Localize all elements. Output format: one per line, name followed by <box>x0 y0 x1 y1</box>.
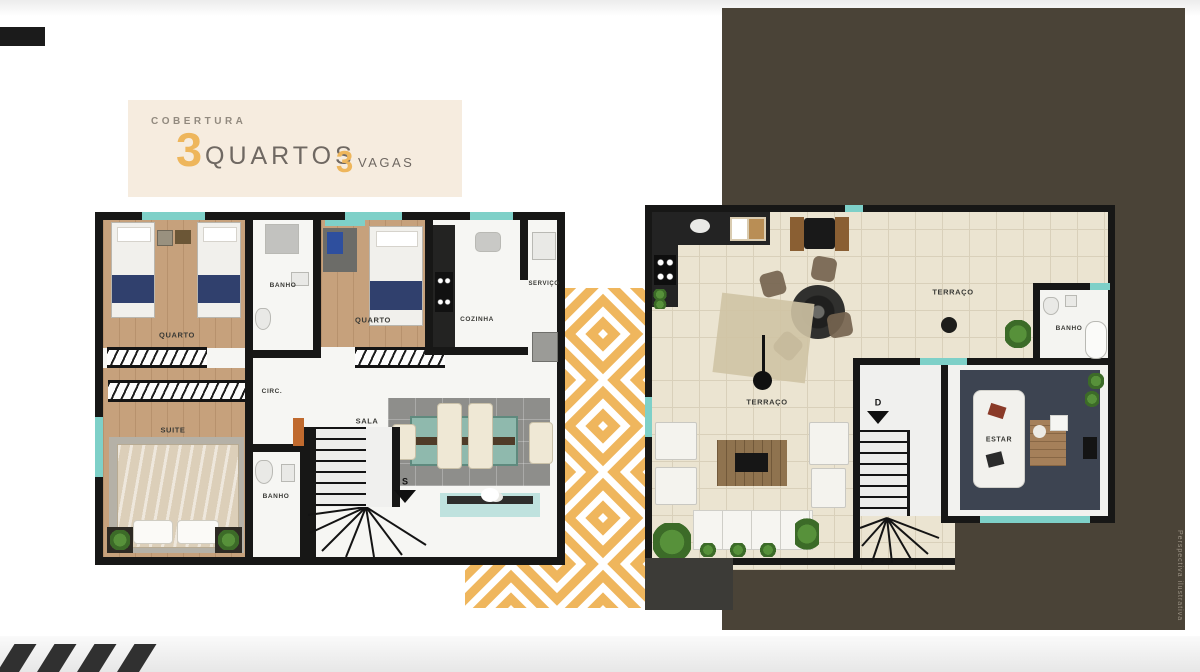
plant <box>653 289 667 300</box>
terrace-chair <box>810 255 838 283</box>
top-left-mark <box>0 27 45 46</box>
logo-slash <box>30 644 77 672</box>
lounge-chair <box>811 468 846 508</box>
wall <box>245 220 253 450</box>
board-detail-wood <box>749 219 764 239</box>
logo-slash <box>70 644 117 672</box>
plant <box>760 543 776 557</box>
blanket <box>112 275 154 303</box>
plant <box>795 517 819 551</box>
page-canvas: COBERTURA 3 QUARTOS 3 VAGAS QUARTO <box>0 0 1200 672</box>
lounge-chair <box>809 422 849 465</box>
planter-pot <box>941 317 957 333</box>
room-label-banho2: BANHO <box>263 494 290 501</box>
bench-plank <box>835 217 849 251</box>
toilet <box>255 308 271 330</box>
window-strip <box>920 358 967 365</box>
room-label-estar: ESTAR <box>986 437 1012 444</box>
wall <box>300 452 308 557</box>
laundry-tank <box>532 232 556 260</box>
blanket <box>198 275 240 303</box>
plan-base-shadow <box>645 558 733 610</box>
pillow <box>376 231 418 247</box>
window-strip <box>980 516 1090 523</box>
wall <box>941 358 948 523</box>
plant <box>653 523 691 561</box>
room-label-sala: SALA <box>356 417 379 425</box>
logo-slash <box>0 644 36 672</box>
washer <box>532 332 558 362</box>
stairs-fan <box>308 507 436 557</box>
terrace-chair <box>826 311 854 339</box>
plant <box>110 530 130 550</box>
stairs-straight <box>316 427 366 507</box>
cooktop <box>654 255 676 285</box>
window-strip <box>470 212 513 220</box>
wall <box>425 220 433 347</box>
stat-parking-label: VAGAS <box>358 155 414 170</box>
bench-seat <box>804 218 835 249</box>
blanket <box>370 281 422 310</box>
room-label-cozinha: COZINHA <box>460 317 494 324</box>
wall <box>520 220 528 280</box>
dining-chair <box>437 403 462 469</box>
room-label-quarto1: QUARTO <box>159 331 195 339</box>
kitchen-sink <box>475 232 501 252</box>
room-label-banho: BANHO <box>1056 326 1083 333</box>
window-strip <box>95 417 103 477</box>
pillow <box>203 227 237 242</box>
nightstand <box>157 230 173 246</box>
window-strip <box>1090 283 1110 290</box>
twin-bed <box>197 222 241 318</box>
door-leaf <box>293 418 304 446</box>
umbrella-base <box>753 371 772 390</box>
wall <box>1033 283 1040 365</box>
stat-bedrooms-label: QUARTOS <box>205 142 356 171</box>
logo-slashes <box>0 640 200 672</box>
wardrobe <box>107 347 207 368</box>
round-rug <box>1033 425 1046 438</box>
shower <box>265 224 299 254</box>
toilet <box>1043 297 1059 315</box>
room-label-terraco-center: TERRAÇO <box>746 398 787 406</box>
wall <box>645 205 1115 212</box>
dining-chair <box>529 422 553 464</box>
deck-tv <box>735 453 768 472</box>
twin-bed <box>111 222 155 318</box>
laptop <box>327 232 343 254</box>
pillow <box>133 520 173 544</box>
stairs-straight <box>860 430 908 516</box>
logo-slash <box>110 644 157 672</box>
room-label-circ: CIRC. <box>262 389 283 396</box>
wall <box>245 444 253 557</box>
plant <box>218 530 239 550</box>
stairs-fan <box>860 516 941 563</box>
stair-direction-s: S <box>402 478 408 487</box>
window-strip <box>345 212 402 220</box>
stat-bedrooms-value: 3 <box>176 122 202 177</box>
plant <box>1005 320 1031 348</box>
picture-frame <box>175 230 191 244</box>
stove <box>435 272 453 312</box>
bathtub <box>1085 321 1107 359</box>
stair-direction-d: D <box>875 399 882 408</box>
lower-floor-plan: QUARTO BANHO QUARTO COZINHA <box>95 212 565 565</box>
wall <box>855 358 1115 365</box>
dining-chair <box>468 403 493 469</box>
stair-arrow-icon <box>394 490 416 503</box>
wall <box>313 220 321 352</box>
plant <box>1085 391 1099 407</box>
plant <box>730 543 746 557</box>
wall <box>853 358 860 565</box>
room-label-servico: SERVIÇO <box>528 281 559 287</box>
room-label-quarto2: QUARTO <box>355 316 391 324</box>
plant <box>1088 373 1104 389</box>
pillow <box>117 227 151 242</box>
watermark: Perspectiva ilustrativa <box>1176 530 1183 630</box>
estar-tv <box>1083 437 1097 459</box>
stair-arrow-icon <box>867 411 889 424</box>
sink <box>1065 295 1077 307</box>
roof-terrace-plan: TERRAÇO TERRAÇO BANHO D <box>645 205 1115 575</box>
title-block: COBERTURA 3 QUARTOS 3 VAGAS <box>128 100 462 197</box>
headboard-strip <box>325 220 365 226</box>
single-bed <box>369 226 423 326</box>
flowers <box>481 488 499 502</box>
room-label-terraco-right: TERRAÇO <box>932 288 973 296</box>
wardrobe <box>108 380 245 402</box>
gourmet-sink <box>690 219 710 233</box>
stairs-landing <box>366 427 392 507</box>
lounge-chair <box>655 467 697 505</box>
room-label-banho1: BANHO <box>270 283 297 290</box>
stairs-rail <box>907 430 910 516</box>
pillow <box>177 520 219 544</box>
wall <box>425 347 528 355</box>
window-strip <box>845 205 863 212</box>
plant <box>653 300 667 309</box>
room-label-suite: SUITE <box>160 426 185 434</box>
wall <box>253 350 321 358</box>
toilet <box>255 460 273 484</box>
table-runner <box>415 437 515 445</box>
board-detail <box>732 219 747 239</box>
stat-parking-value: 3 <box>336 144 353 180</box>
window-strip <box>142 212 205 220</box>
window-strip <box>645 397 652 437</box>
side-table-white <box>1050 415 1068 431</box>
plant <box>700 543 716 557</box>
wall <box>645 205 652 565</box>
sink <box>281 464 295 482</box>
bench-plank <box>790 217 804 251</box>
lounge-chair <box>655 422 697 460</box>
